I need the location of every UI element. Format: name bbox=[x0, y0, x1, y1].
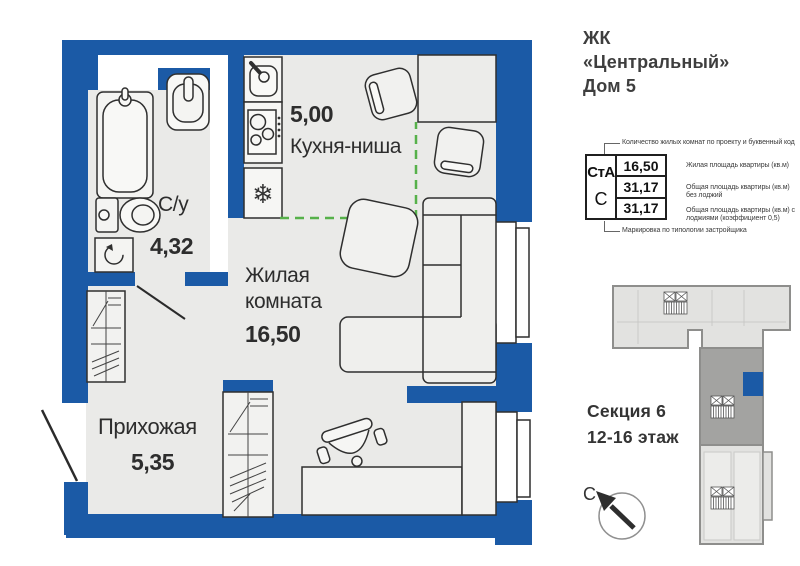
compass bbox=[596, 491, 645, 539]
apartment-location-marker bbox=[743, 372, 763, 396]
kitchen-sink-icon bbox=[244, 57, 282, 102]
apartment-type-letter: С bbox=[595, 189, 608, 210]
living-area-table-value: 16,50 bbox=[617, 156, 665, 177]
apartment-code-cell: СтА С bbox=[587, 156, 617, 218]
hallway-wardrobe-icon bbox=[87, 291, 125, 382]
bathroom-area-value: 4,32 bbox=[150, 234, 193, 258]
desk-icon bbox=[302, 467, 462, 515]
legend-bottom-leader-line bbox=[604, 221, 620, 232]
entrance-door-swing bbox=[42, 410, 77, 481]
compass-north-arrow bbox=[596, 491, 634, 528]
washing-machine-icon bbox=[95, 238, 133, 272]
kitchen-room-label: Кухня-ниша bbox=[290, 136, 401, 158]
section-info: Секция 6 12-16 этаж bbox=[587, 398, 679, 450]
cabinet-icon bbox=[462, 402, 496, 515]
living-room-label: Жилая комната bbox=[245, 263, 349, 315]
total-area-note: Общая площадь квартиры (кв.м) без лоджий bbox=[686, 184, 800, 200]
window-hallway-side bbox=[496, 412, 530, 502]
complex-title: ЖК «Центральный» Дом 5 bbox=[583, 26, 730, 98]
wardrobe-icon bbox=[223, 392, 273, 517]
complex-title-line2: «Центральный» bbox=[583, 50, 730, 74]
apartment-code: СтА bbox=[587, 164, 615, 181]
chair-icon bbox=[433, 126, 485, 178]
bathroom-room-label: С/у bbox=[158, 194, 188, 216]
total-area-with-loggia-note: Общая площадь квартиры (кв.м) с лоджиями… bbox=[686, 207, 800, 223]
snowflake-icon: ❄ bbox=[252, 180, 274, 210]
legend-top-note: Количество жилых комнат по проекту и бук… bbox=[622, 139, 795, 147]
bathroom-sink-icon bbox=[167, 74, 209, 130]
stove-icon bbox=[244, 102, 282, 163]
total-area-table-value: 31,17 bbox=[617, 177, 665, 198]
bathtub-icon bbox=[97, 88, 153, 198]
apartment-info-table: СтА С 16,50 31,17 31,17 bbox=[585, 154, 667, 220]
living-area-note: Жилая площадь квартиры (кв.м) bbox=[686, 162, 800, 170]
toilet-icon bbox=[96, 198, 160, 232]
living-area-value: 16,50 bbox=[245, 322, 301, 346]
section-number: Секция 6 bbox=[587, 398, 679, 424]
hallway-room-label: Прихожая bbox=[98, 415, 197, 438]
hallway-area-value: 5,35 bbox=[131, 450, 174, 474]
armchair-icon bbox=[337, 196, 420, 279]
total-area-with-loggia-table-value: 31,17 bbox=[617, 199, 665, 218]
dining-table bbox=[418, 55, 496, 122]
kitchen-area-value: 5,00 bbox=[290, 102, 333, 126]
window-living-room bbox=[495, 222, 529, 343]
legend-bottom-note: Маркировка по типологии застройщика bbox=[622, 227, 747, 235]
complex-title-line3: Дом 5 bbox=[583, 74, 730, 98]
complex-title-line1: ЖК bbox=[583, 26, 730, 50]
compass-north-letter: С bbox=[583, 484, 596, 505]
floorplan-page: ❄ bbox=[0, 0, 800, 566]
section-floors: 12-16 этаж bbox=[587, 424, 679, 450]
